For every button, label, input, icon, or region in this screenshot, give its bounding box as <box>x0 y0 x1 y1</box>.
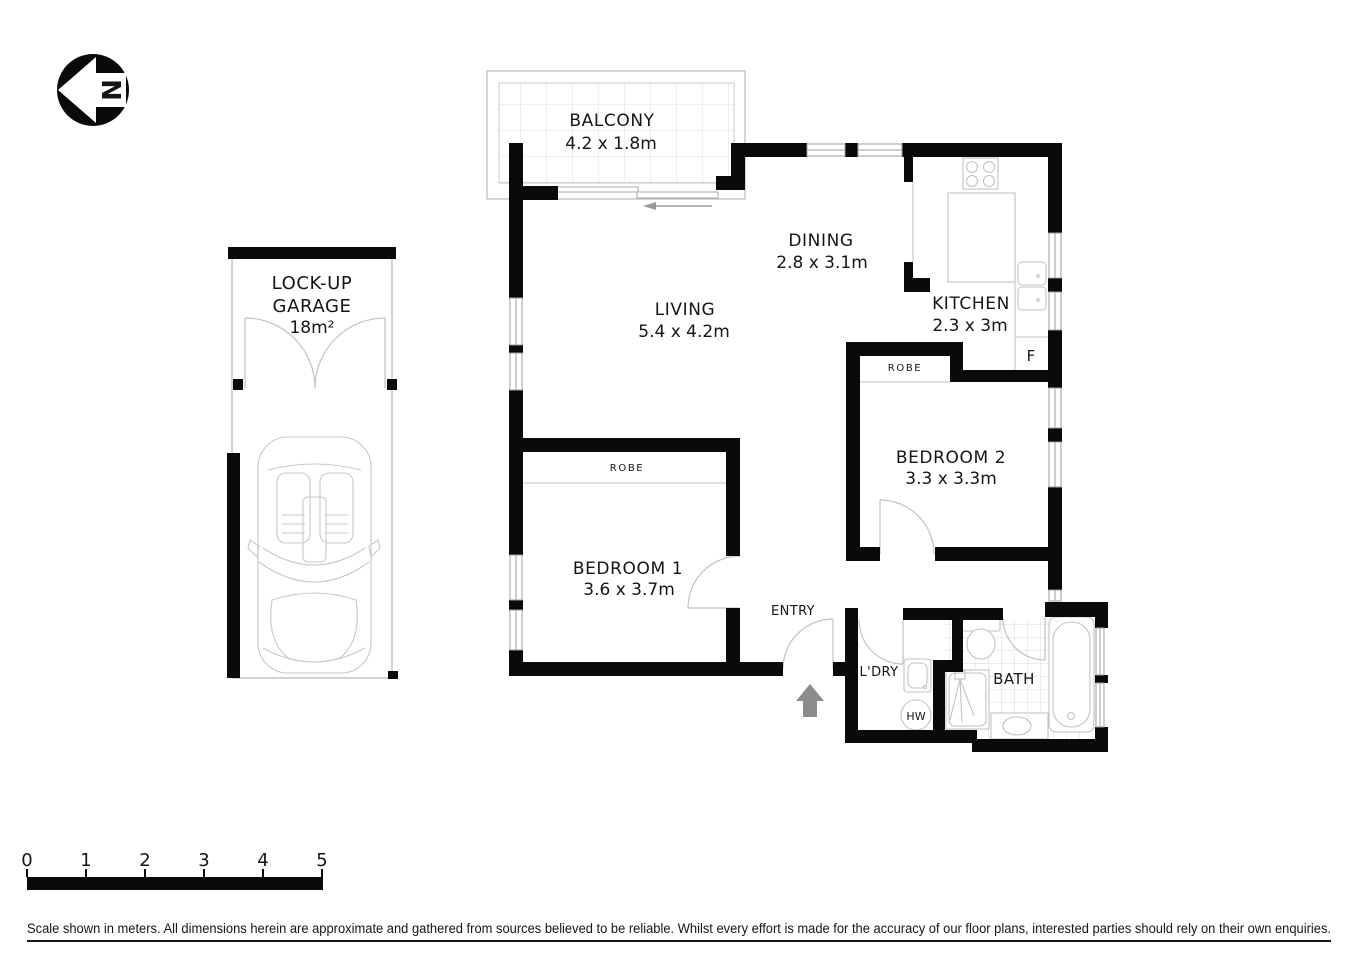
kitchen-sink-icon <box>1018 262 1046 310</box>
kitchen-bench <box>948 193 1015 282</box>
disclaimer-text: Scale shown in meters. All dimensions he… <box>27 921 1331 936</box>
scale-tick-5: 5 <box>316 850 327 871</box>
balcony-name: BALCONY <box>569 111 654 131</box>
window <box>510 610 522 650</box>
scale-tick-0: 0 <box>21 850 32 871</box>
window <box>1096 683 1104 727</box>
floor-plan: N BALCONY 4.2 x 1.8m <box>0 0 1358 960</box>
window <box>1096 628 1104 675</box>
fridge-label: F <box>1027 347 1036 365</box>
bedroom2-dims: 3.3 x 3.3m <box>905 469 997 489</box>
kitchen-dims: 2.3 x 3m <box>932 316 1007 336</box>
north-letter: N <box>95 79 125 101</box>
garage-name-line2: GARAGE <box>273 296 352 317</box>
bath-label: BATH <box>993 670 1035 688</box>
window <box>510 555 522 600</box>
washing-machine-icon <box>904 659 931 692</box>
bedroom1-door <box>688 556 740 608</box>
slide-direction-arrow-icon <box>643 202 712 210</box>
window <box>1049 442 1061 487</box>
laundry-door <box>859 620 903 664</box>
scale-tick-3: 3 <box>198 850 209 871</box>
dining-name: DINING <box>788 231 853 251</box>
scale-bar-rect <box>27 877 323 890</box>
balcony-dims: 4.2 x 1.8m <box>565 134 657 154</box>
garage-name-line1: LOCK-UP <box>272 273 353 294</box>
bedroom1-robe-label: ROBE <box>610 463 644 474</box>
stove-icon <box>963 158 998 189</box>
bedroom2-door <box>880 500 934 554</box>
entry-label: ENTRY <box>771 604 815 619</box>
balcony-tiles <box>499 83 734 183</box>
entry-door <box>783 619 833 669</box>
window <box>1049 292 1061 330</box>
bedroom2-robe-label: ROBE <box>888 363 922 374</box>
living-dims: 5.4 x 4.2m <box>638 322 730 342</box>
disclaimer: Scale shown in meters. All dimensions he… <box>27 921 1331 941</box>
scale-ticks <box>27 869 322 877</box>
scale-bar: 0 1 2 3 4 5 <box>21 850 327 890</box>
north-arrow-icon: N <box>57 54 129 126</box>
window <box>510 353 522 390</box>
entry-arrow-icon <box>796 684 824 717</box>
kitchen-name: KITCHEN <box>932 294 1010 314</box>
window <box>1049 233 1061 278</box>
window <box>510 298 522 345</box>
garage-area: 18m² <box>289 318 334 338</box>
bedroom1-name: BEDROOM 1 <box>573 559 683 579</box>
laundry-label: L'DRY <box>860 665 899 680</box>
scale-tick-1: 1 <box>80 850 91 871</box>
car-icon <box>248 437 380 673</box>
scale-tick-4: 4 <box>257 850 268 871</box>
shower-icon <box>946 670 989 729</box>
window <box>1049 388 1061 428</box>
window <box>1049 590 1061 601</box>
bedroom1-dims: 3.6 x 3.7m <box>583 580 675 600</box>
scale-tick-2: 2 <box>139 850 150 871</box>
hot-water-label: HW <box>906 710 925 723</box>
room-garage: LOCK-UP GARAGE 18m² <box>227 247 398 679</box>
vanity-sink-icon <box>991 713 1048 739</box>
bathtub-icon <box>1049 617 1094 732</box>
balcony-sliding-door <box>557 187 718 198</box>
bedroom2-name: BEDROOM 2 <box>896 448 1006 468</box>
living-name: LIVING <box>655 300 716 320</box>
dining-dims: 2.8 x 3.1m <box>776 253 868 273</box>
window <box>807 144 845 156</box>
window <box>858 144 902 156</box>
